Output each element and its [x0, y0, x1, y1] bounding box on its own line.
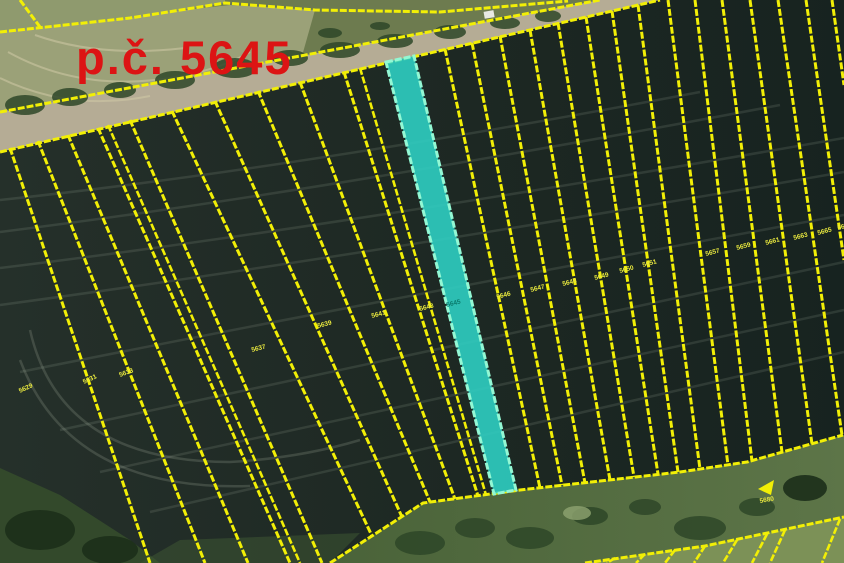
- bush-blob: [395, 531, 445, 555]
- tree-blob: [535, 10, 561, 22]
- bush-blob: [82, 536, 138, 563]
- parcel-title: p.č. 5645: [76, 31, 293, 84]
- bush-blob: [674, 516, 726, 540]
- bush-blob: [455, 518, 495, 538]
- tree-blob: [318, 28, 342, 38]
- bush-blob: [5, 510, 75, 550]
- bush-blob: [783, 475, 827, 501]
- map-canvas[interactable]: 5629563156335637563956415643564556465647…: [0, 0, 844, 563]
- bush-blob: [629, 499, 661, 515]
- map-viewport[interactable]: 5629563156335637563956415643564556465647…: [0, 0, 844, 563]
- light-grass-patch: [563, 506, 591, 520]
- bush-blob: [506, 527, 554, 549]
- tree-blob: [370, 22, 390, 30]
